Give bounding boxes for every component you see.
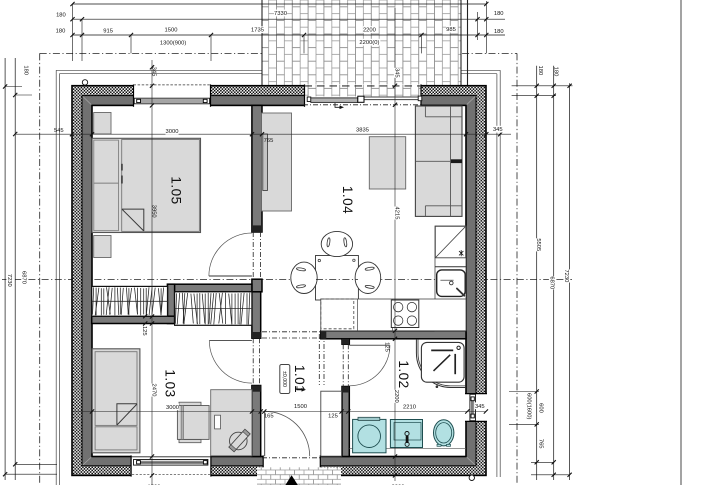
svg-text:2470: 2470 (150, 384, 156, 397)
svg-text:180: 180 (553, 67, 559, 77)
svg-text:180: 180 (56, 29, 66, 35)
svg-text:1.02: 1.02 (396, 360, 411, 388)
svg-text:125: 125 (328, 414, 338, 420)
svg-text:180: 180 (537, 66, 543, 76)
svg-text:6870: 6870 (21, 271, 27, 284)
svg-text:600: 600 (537, 403, 543, 413)
svg-text:985: 985 (446, 27, 456, 33)
svg-text:165: 165 (264, 414, 274, 420)
svg-text:2210: 2210 (403, 404, 416, 410)
svg-text:180: 180 (56, 13, 66, 19)
svg-text:1500: 1500 (165, 27, 178, 33)
svg-text:1.05: 1.05 (169, 176, 184, 204)
svg-text:±0,000: ±0,000 (281, 371, 287, 387)
svg-text:1.01: 1.01 (292, 365, 307, 393)
svg-text:1735: 1735 (251, 28, 264, 34)
svg-text:4215: 4215 (393, 207, 399, 220)
svg-text:1300(900): 1300(900) (160, 40, 186, 46)
svg-text:3000: 3000 (166, 129, 179, 135)
svg-text:345: 345 (493, 127, 503, 133)
svg-text:3000: 3000 (166, 405, 179, 411)
svg-text:7230: 7230 (563, 269, 569, 282)
svg-text:7230: 7230 (6, 274, 12, 287)
svg-text:1.03: 1.03 (163, 369, 178, 397)
svg-text:600(1600): 600(1600) (525, 393, 531, 419)
svg-text:7330: 7330 (274, 11, 287, 17)
svg-text:3835: 3835 (356, 127, 369, 133)
svg-text:1.04: 1.04 (340, 186, 355, 214)
svg-text:345: 345 (150, 67, 156, 77)
svg-text:180: 180 (494, 29, 504, 35)
svg-text:2200(0): 2200(0) (359, 40, 379, 46)
svg-text:2200: 2200 (363, 28, 376, 34)
svg-text:180: 180 (23, 65, 29, 75)
svg-text:545: 545 (54, 128, 64, 134)
svg-text:2200: 2200 (393, 390, 399, 403)
svg-text:5505: 5505 (535, 238, 541, 251)
svg-text:125: 125 (141, 326, 147, 336)
svg-text:345: 345 (393, 68, 399, 78)
svg-text:180: 180 (494, 11, 504, 17)
svg-text:1500: 1500 (294, 404, 307, 410)
svg-text:3950: 3950 (150, 205, 156, 218)
svg-text:765: 765 (537, 439, 543, 449)
svg-text:345: 345 (475, 404, 485, 410)
svg-text:765: 765 (264, 138, 274, 144)
svg-text:6870: 6870 (548, 276, 554, 289)
svg-text:915: 915 (103, 29, 113, 35)
svg-text:125: 125 (384, 342, 390, 352)
